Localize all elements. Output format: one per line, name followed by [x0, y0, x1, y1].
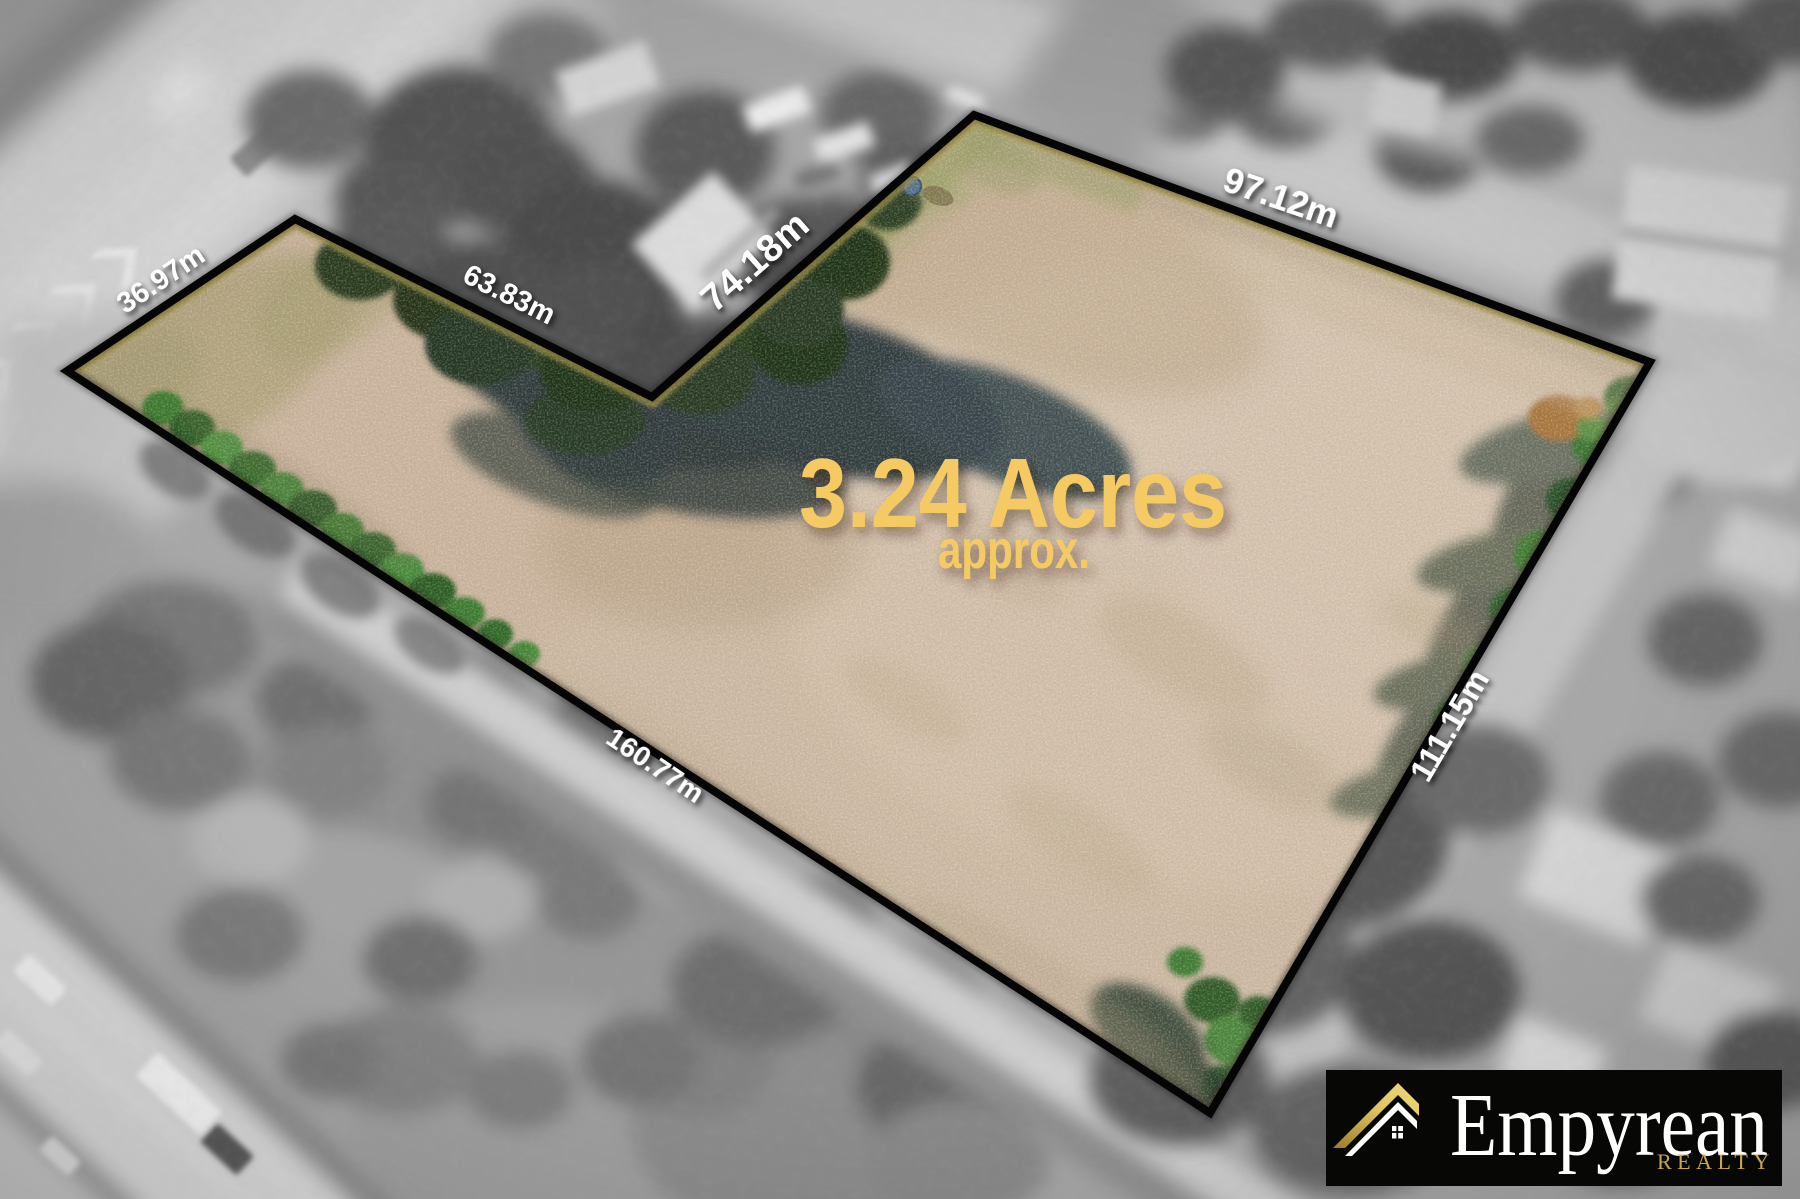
svg-text:approx.: approx.	[938, 520, 1090, 580]
svg-text:REALTY: REALTY	[1657, 1149, 1775, 1174]
